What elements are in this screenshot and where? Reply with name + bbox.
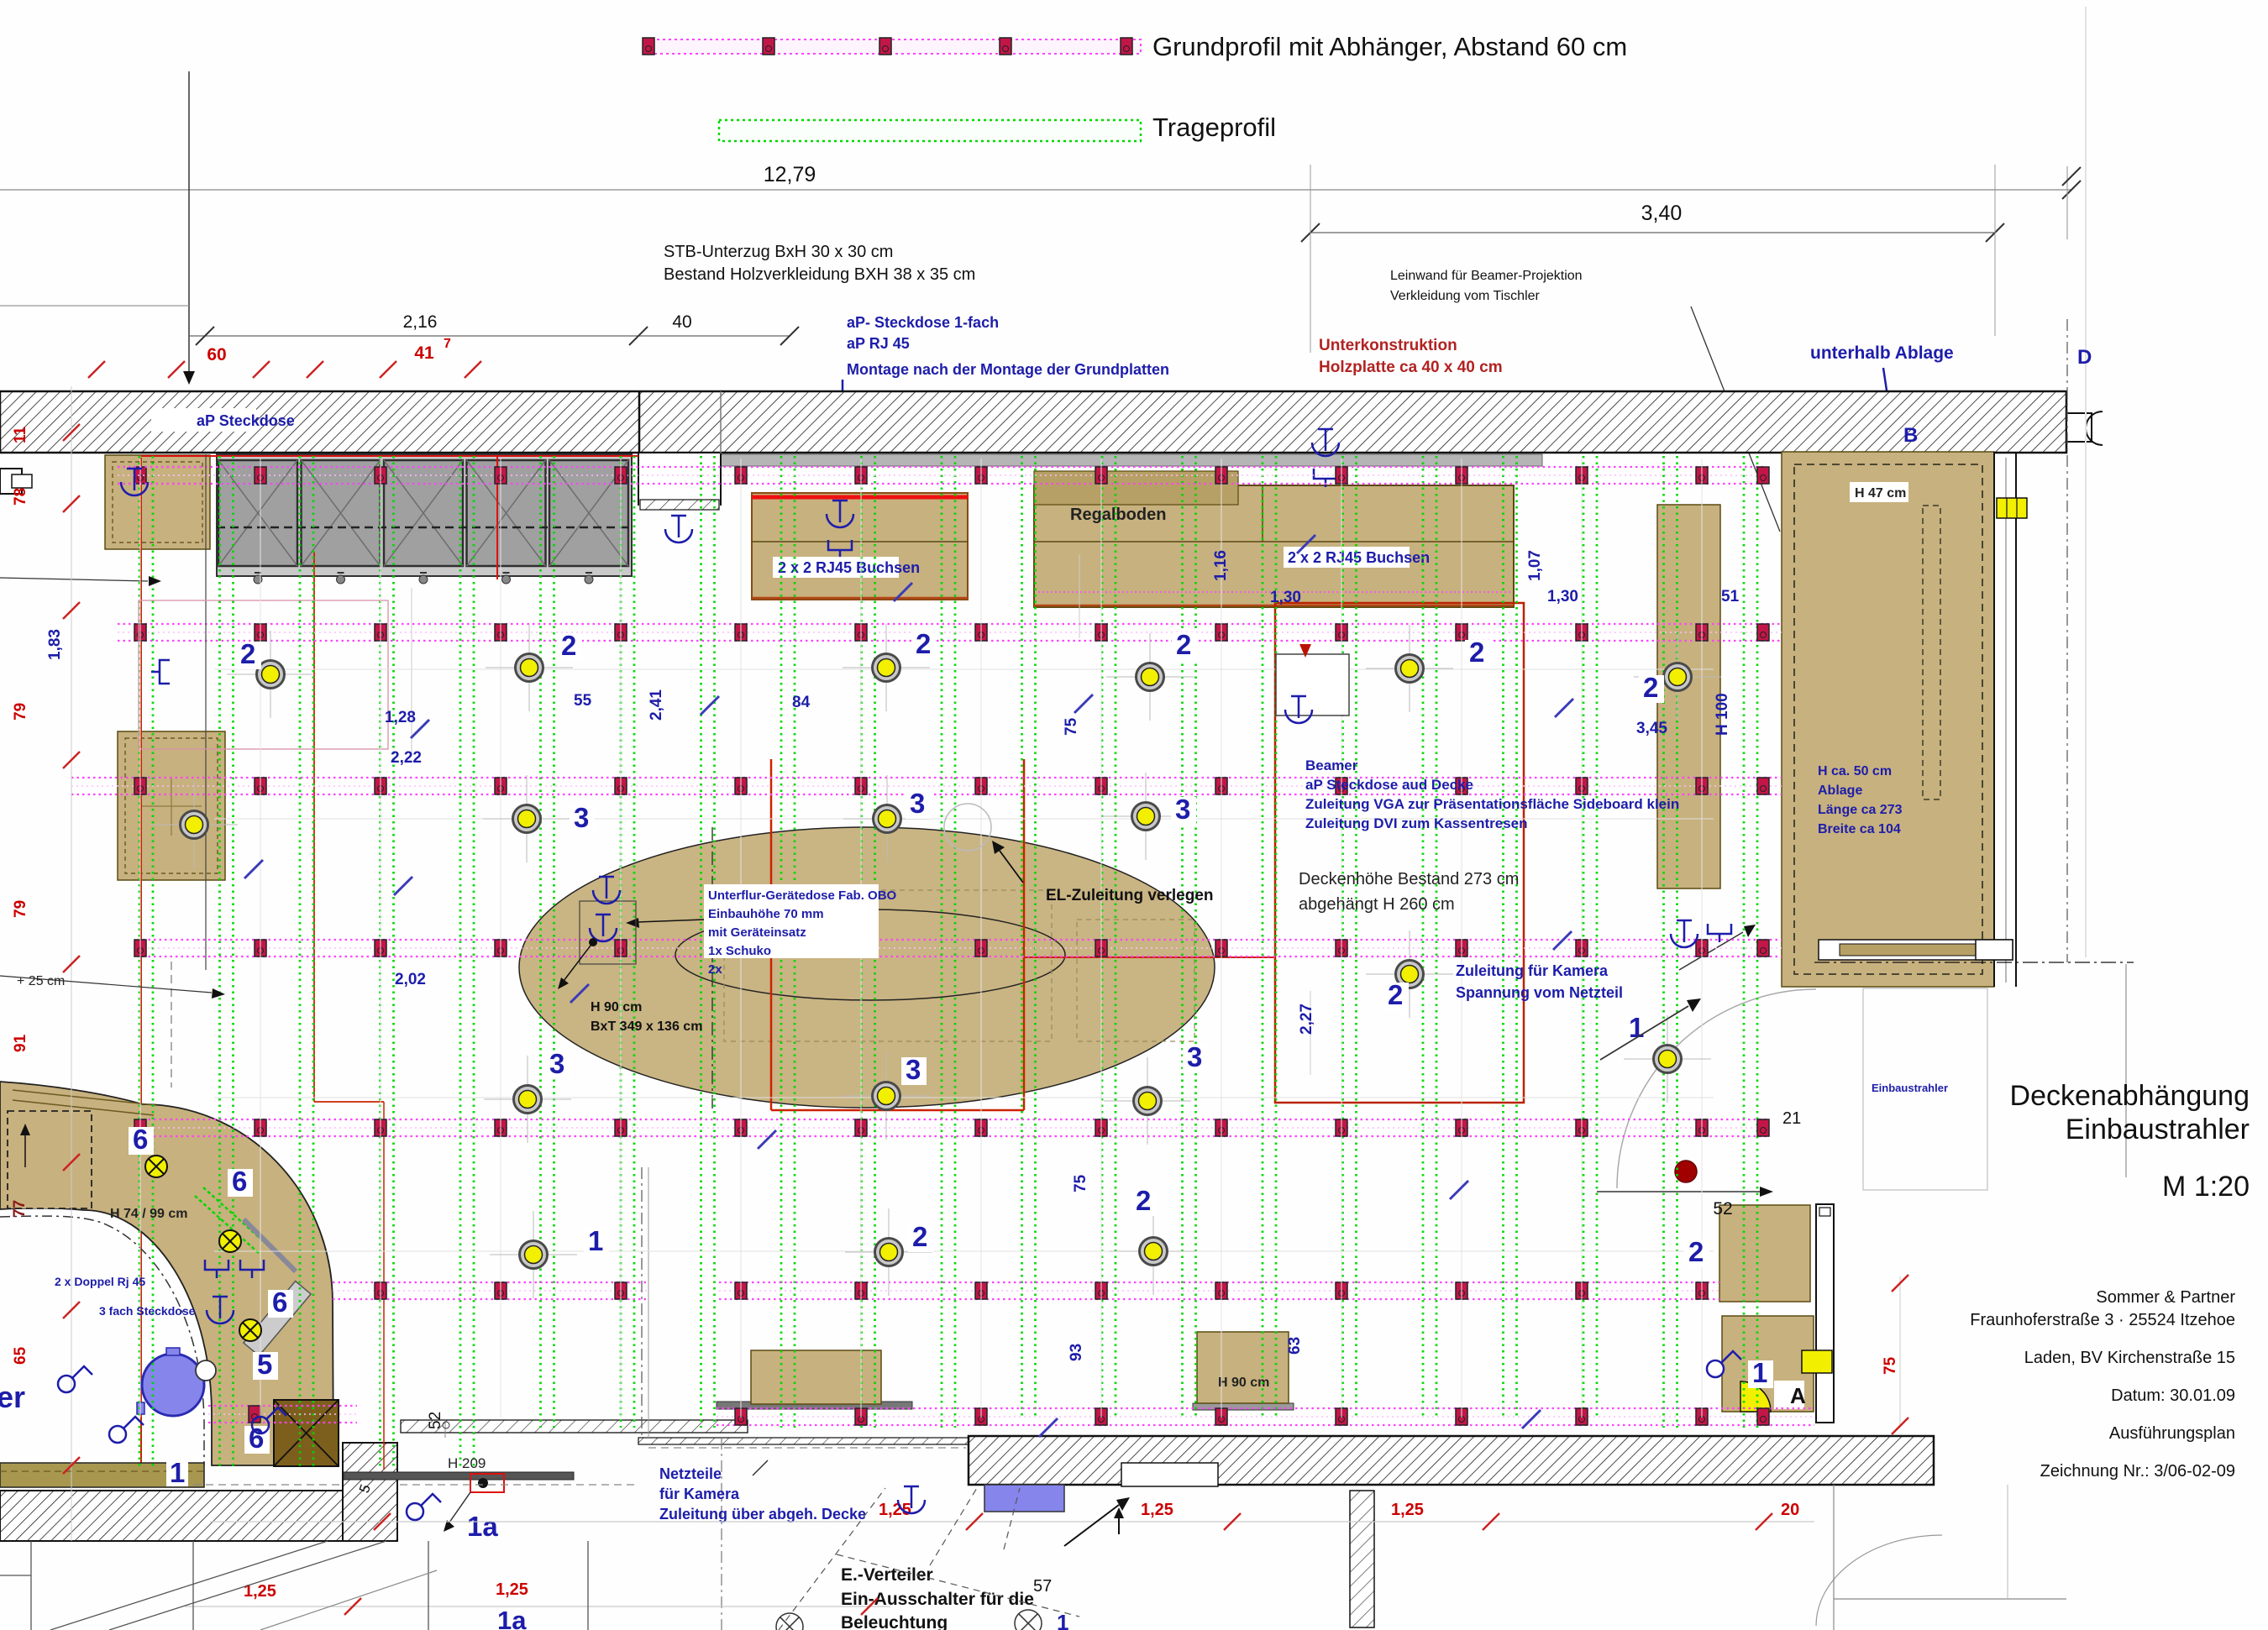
- svg-text:Ablage: Ablage: [1818, 784, 1862, 798]
- svg-text:Zeichnung Nr.: 3/06-02-09: Zeichnung Nr.: 3/06-02-09: [2040, 1462, 2235, 1481]
- svg-text:H ca. 50 cm: H ca. 50 cm: [1818, 764, 1892, 778]
- svg-text:75: 75: [1063, 717, 1080, 736]
- svg-text:60: 60: [207, 345, 226, 364]
- svg-text:EL-Zuleitung verlegen: EL-Zuleitung verlegen: [1046, 887, 1214, 904]
- svg-text:Zuleitung VGA zur Präsentation: Zuleitung VGA zur Präsentationsfläche Si…: [1305, 796, 1679, 812]
- svg-text:2,27: 2,27: [1298, 1004, 1315, 1035]
- svg-text:abgehängt H 260 cm: abgehängt H 260 cm: [1299, 895, 1455, 914]
- svg-text:2 x 2 RJ45 Buchsen: 2 x 2 RJ45 Buchsen: [778, 559, 920, 576]
- svg-text:2x: 2x: [708, 962, 722, 977]
- svg-text:1,25: 1,25: [879, 1501, 911, 1519]
- svg-text:1,28: 1,28: [385, 709, 416, 726]
- svg-text:B: B: [1903, 424, 1918, 447]
- svg-text:E.-Verteiler: E.-Verteiler: [841, 1565, 933, 1585]
- svg-text:51: 51: [1721, 588, 1740, 605]
- svg-text:Unterkonstruktion: Unterkonstruktion: [1319, 337, 1457, 354]
- svg-text:1,25: 1,25: [1141, 1501, 1173, 1519]
- svg-text:77: 77: [11, 1200, 29, 1218]
- svg-text:Unterflur-Gerätedose Fab. OBO: Unterflur-Gerätedose Fab. OBO: [708, 888, 897, 903]
- svg-text:12,79: 12,79: [764, 163, 816, 186]
- svg-text:Netzteile: Netzteile: [659, 1465, 722, 1482]
- svg-text:1: 1: [170, 1457, 185, 1488]
- svg-text:1,25: 1,25: [1391, 1501, 1424, 1519]
- svg-text:1,30: 1,30: [1547, 588, 1578, 605]
- svg-text:BxT 349 x 136 cm: BxT 349 x 136 cm: [591, 1019, 702, 1034]
- svg-text:1a: 1a: [467, 1511, 498, 1542]
- svg-text:Bestand Holzverkleidung BXH 38: Bestand Holzverkleidung BXH 38 x 35 cm: [664, 265, 975, 284]
- svg-text:Einbaustrahler: Einbaustrahler: [1872, 1082, 1948, 1094]
- svg-text:Zuleitung DVI zum Kassentresen: Zuleitung DVI zum Kassentresen: [1305, 815, 1528, 831]
- svg-text:3: 3: [549, 1048, 564, 1079]
- svg-text:2,22: 2,22: [391, 749, 422, 767]
- svg-text:2: 2: [916, 628, 931, 659]
- svg-text:2,16: 2,16: [403, 312, 438, 332]
- svg-text:3: 3: [1187, 1041, 1202, 1072]
- svg-text:Verkleidung vom Tischler: Verkleidung vom Tischler: [1390, 289, 1541, 303]
- svg-text:3,45: 3,45: [1636, 720, 1667, 737]
- svg-text:1: 1: [1752, 1357, 1767, 1388]
- svg-text:A: A: [1790, 1383, 1806, 1408]
- svg-text:75: 75: [1882, 1356, 1899, 1375]
- svg-text:aP Steckdose aud Decke: aP Steckdose aud Decke: [1305, 777, 1473, 793]
- svg-text:Laden, BV Kirchenstraße 15: Laden, BV Kirchenstraße 15: [2024, 1349, 2235, 1367]
- svg-text:11: 11: [12, 426, 29, 443]
- svg-text:6: 6: [272, 1287, 287, 1318]
- svg-text:Fraunhoferstraße 3 · 25524 It: Fraunhoferstraße 3 · 25524 Itzehoe: [1970, 1311, 2235, 1329]
- svg-text:Leinwand für Beamer-Projektion: Leinwand für Beamer-Projektion: [1390, 269, 1583, 283]
- svg-text:2: 2: [1469, 637, 1484, 668]
- svg-text:Einbaustrahler: Einbaustrahler: [2066, 1114, 2250, 1145]
- svg-text:2: 2: [561, 630, 576, 661]
- svg-text:unterhalb Ablage: unterhalb Ablage: [1810, 343, 1954, 363]
- svg-text:aP Steckdose: aP Steckdose: [197, 412, 295, 429]
- svg-text:Grundprofil mit Abhänger, Abst: Grundprofil mit Abhänger, Abstand 60 cm: [1152, 32, 1627, 61]
- svg-text:2: 2: [1136, 1185, 1151, 1216]
- svg-text:D: D: [2077, 346, 2092, 369]
- svg-text:2,02: 2,02: [395, 971, 426, 988]
- svg-text:1,07: 1,07: [1526, 550, 1544, 581]
- svg-text:Montage nach der Montage der G: Montage nach der Montage der Grundplatte…: [847, 361, 1169, 378]
- svg-text:H 74 / 99 cm: H 74 / 99 cm: [110, 1207, 188, 1221]
- svg-text:STB-Unterzug BxH 30 x 30 cm: STB-Unterzug BxH 30 x 30 cm: [664, 243, 893, 261]
- svg-text:Zuleitung für Kamera: Zuleitung für Kamera: [1456, 962, 1609, 979]
- svg-text:1: 1: [588, 1225, 603, 1256]
- svg-text:63: 63: [1286, 1337, 1304, 1355]
- svg-text:65: 65: [12, 1346, 29, 1365]
- svg-text:H 47 cm: H 47 cm: [1855, 486, 1906, 501]
- svg-text:84: 84: [792, 694, 811, 711]
- svg-text:Breite ca 104: Breite ca 104: [1818, 822, 1901, 836]
- svg-text:H 209: H 209: [448, 1455, 486, 1471]
- svg-text:2: 2: [1643, 672, 1658, 703]
- svg-text:Holzplatte ca 40 x 40 cm: Holzplatte ca 40 x 40 cm: [1319, 359, 1503, 376]
- svg-text:mit Geräteinsatz: mit Geräteinsatz: [708, 925, 806, 940]
- svg-text:2 x 2 RJ45 Buchsen: 2 x 2 RJ45 Buchsen: [1288, 549, 1430, 566]
- svg-text:7: 7: [444, 337, 451, 351]
- svg-text:H 100: H 100: [1714, 693, 1731, 736]
- svg-text:5: 5: [257, 1349, 272, 1380]
- svg-text:52: 52: [427, 1412, 444, 1429]
- svg-text:3: 3: [910, 788, 925, 819]
- svg-text:H 90 cm: H 90 cm: [591, 1000, 642, 1014]
- svg-text:1,30: 1,30: [1270, 589, 1301, 606]
- svg-text:20: 20: [1781, 1501, 1799, 1519]
- svg-text:55: 55: [574, 692, 592, 710]
- svg-text:Beleuchtung: Beleuchtung: [841, 1613, 948, 1630]
- svg-text:1,83: 1,83: [46, 629, 64, 660]
- svg-text:2: 2: [1176, 629, 1191, 660]
- svg-text:1a: 1a: [497, 1606, 527, 1630]
- svg-text:2: 2: [240, 638, 255, 669]
- svg-text:Beamer: Beamer: [1305, 757, 1358, 773]
- svg-text:Regalboden: Regalboden: [1070, 506, 1166, 524]
- svg-text:40: 40: [672, 312, 691, 332]
- svg-text:für Kamera: für Kamera: [659, 1486, 740, 1502]
- svg-text:Spannung vom Netzteil: Spannung vom Netzteil: [1456, 984, 1623, 1001]
- svg-text:aP- Steckdose 1-fach: aP- Steckdose 1-fach: [847, 314, 999, 331]
- svg-text:2,41: 2,41: [648, 689, 665, 721]
- svg-text:Trageprofil: Trageprofil: [1152, 113, 1276, 142]
- svg-text:Zuleitung über abgeh. Decke: Zuleitung über abgeh. Decke: [659, 1506, 866, 1523]
- svg-text:21: 21: [1782, 1109, 1801, 1128]
- svg-text:2: 2: [1688, 1236, 1704, 1267]
- svg-text:1,25: 1,25: [496, 1580, 528, 1599]
- svg-text:Länge ca 273: Länge ca 273: [1818, 803, 1903, 817]
- svg-text:+ 25 cm: + 25 cm: [17, 974, 65, 988]
- svg-text:3: 3: [1175, 794, 1190, 825]
- svg-text:3: 3: [906, 1054, 921, 1085]
- svg-text:3,40: 3,40: [1641, 202, 1683, 225]
- svg-text:52: 52: [1713, 1199, 1732, 1219]
- svg-text:6: 6: [133, 1124, 148, 1155]
- svg-text:78: 78: [12, 488, 29, 506]
- svg-text:3 fach Steckdose: 3 fach Steckdose: [99, 1304, 196, 1318]
- svg-text:M 1:20: M 1:20: [2162, 1171, 2250, 1203]
- svg-text:2: 2: [912, 1221, 927, 1252]
- svg-text:Datum: 30.01.09: Datum: 30.01.09: [2111, 1386, 2235, 1405]
- svg-text:75: 75: [1072, 1174, 1089, 1192]
- svg-text:6: 6: [232, 1166, 247, 1197]
- svg-text:1x Schuko: 1x Schuko: [708, 944, 771, 958]
- svg-text:Sommer & Partner: Sommer & Partner: [2096, 1288, 2235, 1307]
- svg-text:2: 2: [1388, 979, 1403, 1010]
- svg-text:93: 93: [1068, 1344, 1085, 1361]
- svg-text:2 x Doppel Rj 45: 2 x Doppel Rj 45: [55, 1275, 145, 1288]
- svg-text:Deckenabhängung: Deckenabhängung: [2010, 1080, 2250, 1112]
- svg-text:Deckenhöhe Bestand 273 cm: Deckenhöhe Bestand 273 cm: [1299, 870, 1519, 888]
- svg-text:79: 79: [12, 900, 29, 918]
- svg-text:79: 79: [12, 703, 29, 721]
- svg-text:1,16: 1,16: [1212, 550, 1230, 581]
- svg-text:aP RJ 45: aP RJ 45: [847, 335, 910, 352]
- svg-text:6: 6: [249, 1423, 264, 1454]
- svg-text:3: 3: [574, 802, 589, 833]
- svg-text:1: 1: [1057, 1610, 1068, 1630]
- svg-text:Einbauhöhe 70 mm: Einbauhöhe 70 mm: [708, 907, 824, 921]
- svg-text:er: er: [0, 1380, 25, 1414]
- svg-text:91: 91: [12, 1034, 29, 1052]
- svg-text:41: 41: [414, 343, 434, 363]
- svg-text:Ausführungsplan: Ausführungsplan: [2109, 1424, 2235, 1443]
- svg-text:57: 57: [1033, 1577, 1052, 1596]
